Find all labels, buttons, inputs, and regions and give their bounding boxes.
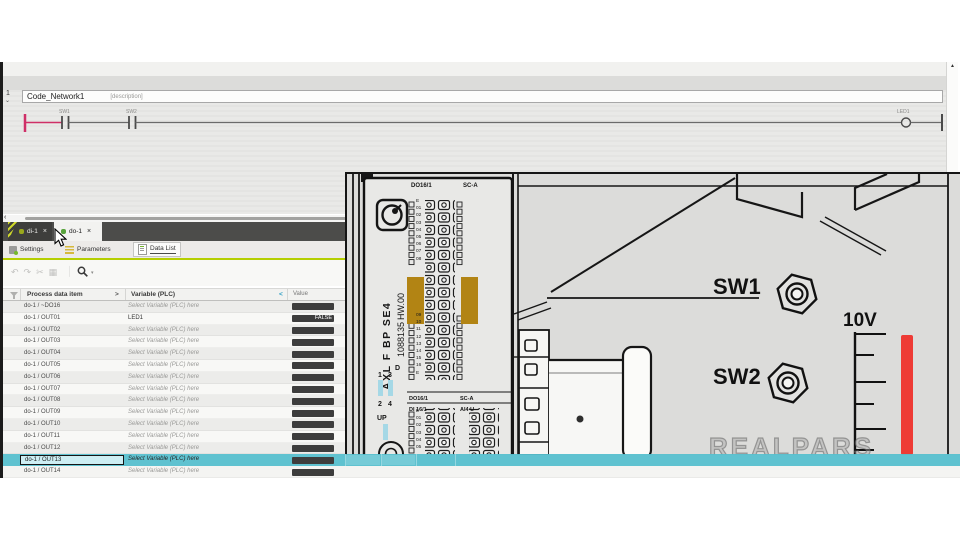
process-data-item[interactable]: do-1 / OUT10 [24, 419, 60, 431]
network-title: Code_Network1 [27, 92, 84, 101]
variable-cell[interactable]: Select Variable (PLC) here [128, 348, 199, 360]
tab-di-1-label: di-1 [27, 228, 38, 235]
data-list-label: Data List [150, 245, 176, 254]
value-bar [292, 457, 334, 464]
dip-label-2: 2 [378, 401, 382, 408]
collapse-column-icon[interactable]: < [279, 291, 283, 298]
tab-parameters[interactable]: Parameters [65, 242, 111, 257]
screw-dot [577, 416, 584, 423]
value-bar [292, 433, 334, 440]
process-data-item[interactable]: do-1 / OUT03 [24, 336, 60, 348]
variable-cell[interactable]: Select Variable (PLC) here [128, 384, 199, 396]
value-bar [292, 339, 334, 346]
column-value[interactable]: Value [293, 291, 308, 297]
cell-separator [416, 454, 417, 466]
toolbar-separator: │ [67, 266, 73, 276]
cell-hint [346, 455, 380, 465]
tab-data-list[interactable]: Data List [133, 242, 181, 257]
variable-cell[interactable]: Select Variable (PLC) here [128, 419, 199, 431]
terminal-column [469, 408, 484, 455]
hw-version-text: HW.00 [396, 293, 406, 320]
contact1-label: SW1 [59, 109, 70, 115]
search-icon[interactable] [77, 266, 89, 278]
channel-label-do16: DO16/1 [411, 183, 432, 189]
terminal-column [440, 200, 455, 380]
value-bar [292, 351, 334, 358]
plc-drawing: AXL F BP SE4 1088135 HW.00 D 1 3 2 4 UP … [347, 174, 960, 455]
process-data-item[interactable]: do-1 / OUT04 [24, 348, 60, 360]
dip-switch-bar [388, 380, 393, 396]
variable-cell[interactable]: Select Variable (PLC) here [128, 454, 199, 466]
gold-highlight [461, 277, 478, 324]
table-row-selected[interactable]: do-1 / OUT13 Select Variable (PLC) here [3, 454, 960, 466]
voltage-label: 10V [843, 310, 877, 331]
value-bar [292, 362, 334, 369]
divider-label-do16: DO16/1 [409, 396, 428, 402]
value-bar [292, 445, 334, 452]
terminal-column [440, 408, 455, 455]
value-bar [292, 469, 334, 476]
variable-cell[interactable]: Select Variable (PLC) here [128, 431, 199, 443]
cell-hint [382, 455, 415, 465]
sw1-switch[interactable] [778, 275, 817, 314]
dip-label-up: UP [377, 415, 387, 422]
panel-notch [855, 174, 919, 210]
scroll-left-icon[interactable]: ‹ [4, 214, 6, 221]
network-header[interactable]: Code_Network1 [description] [22, 90, 943, 103]
process-data-item[interactable]: do-1 / OUT09 [24, 407, 60, 419]
column-divider [20, 289, 21, 300]
network-collapse-icon[interactable]: ⌄ [5, 97, 10, 104]
variable-cell[interactable]: Select Variable (PLC) here [128, 443, 199, 455]
module-icon [19, 229, 24, 234]
search-caret-icon[interactable]: ▾ [91, 270, 94, 276]
process-data-item[interactable]: do-1 / OUT05 [24, 360, 60, 372]
editor-second-band [3, 76, 946, 90]
process-data-item[interactable]: do-1 / OUT02 [24, 325, 60, 337]
terminal-column [484, 408, 499, 455]
panel-notch [737, 174, 802, 217]
sw2-switch[interactable] [769, 364, 808, 403]
watermark: REALPARS [709, 432, 874, 455]
filter-icon[interactable] [9, 291, 19, 300]
tab-settings[interactable]: Settings [9, 242, 44, 257]
value-bar [292, 398, 334, 405]
process-data-item[interactable]: do-1 / OUT08 [24, 395, 60, 407]
led-labels-do2: 09 10 11 12 13 14 15 16 E [416, 312, 428, 377]
value-bar: FALSE [292, 315, 334, 322]
scroll-up-icon[interactable]: ▲ [950, 63, 955, 69]
process-data-item[interactable]: do-1 / ~DO16 [24, 301, 60, 313]
editor-vertical-scrollbar[interactable]: ▲ [946, 62, 958, 172]
dip-label-4: 4 [388, 401, 392, 408]
variable-cell[interactable]: Select Variable (PLC) here [128, 372, 199, 384]
column-divider [287, 289, 288, 300]
value-bar [292, 421, 334, 428]
leader-line [820, 221, 881, 255]
dip-switch-bar [378, 380, 383, 396]
channel-label-sca: SC-A [463, 183, 478, 189]
process-data-item[interactable]: do-1 / OUT06 [24, 372, 60, 384]
variable-cell[interactable]: Select Variable (PLC) here [128, 466, 199, 478]
mouse-cursor [54, 228, 67, 247]
settings-label: Settings [20, 246, 44, 253]
coil-label: LED1 [897, 109, 910, 115]
process-data-item[interactable]: do-1 / OUT11 [24, 431, 60, 443]
redo-icon[interactable]: ↷ [24, 267, 37, 277]
dip-switch-bar [383, 424, 388, 440]
tab-di-1[interactable]: di-1 × [8, 222, 52, 241]
dip-label-1: 1 [378, 372, 382, 379]
variable-cell[interactable]: LED1 [128, 313, 143, 325]
edit-icons[interactable]: ↶↷✂▦ [11, 267, 62, 278]
value-bar [292, 374, 334, 381]
cell-separator [455, 454, 456, 466]
leader-line [551, 178, 735, 292]
settings-icon [9, 246, 17, 254]
leader-line [825, 217, 886, 251]
variable-cell[interactable]: Select Variable (PLC) here [128, 301, 199, 313]
tab-do-1-close[interactable]: × [87, 228, 91, 235]
value-bar [292, 303, 334, 310]
variable-cell[interactable]: Select Variable (PLC) here [128, 336, 199, 348]
modified-hatch-icon [8, 222, 17, 241]
value-bar [292, 386, 334, 393]
process-data-item[interactable]: do-1 / OUT13 [20, 455, 124, 465]
process-data-item[interactable]: do-1 / OUT12 [24, 443, 60, 455]
voltage-level-bar [901, 335, 913, 455]
process-data-item[interactable]: do-1 / OUT14 [24, 466, 60, 478]
column-variable-plc[interactable]: Variable (PLC) [131, 291, 175, 298]
column-process-data-item[interactable]: Process data item [27, 291, 83, 298]
column-divider [125, 289, 126, 300]
value-bar [292, 410, 334, 417]
tab-di-1-close[interactable]: × [43, 228, 47, 235]
process-data-item[interactable]: do-1 / OUT01 [24, 313, 60, 325]
editor-top-band [3, 62, 946, 76]
variable-cell[interactable]: Select Variable (PLC) here [128, 407, 199, 419]
led-labels-do: E 01 02 03 04 05 06 07 08 [416, 198, 428, 263]
tab-do-1-label: do-1 [69, 228, 82, 235]
table-row[interactable]: do-1 / OUT14Select Variable (PLC) here [3, 466, 960, 478]
variable-cell[interactable]: Select Variable (PLC) here [128, 360, 199, 372]
variable-cell[interactable]: Select Variable (PLC) here [128, 395, 199, 407]
parameters-label: Parameters [77, 246, 111, 253]
undo-icon[interactable]: ↶ [11, 267, 24, 277]
value-text: FALSE [315, 315, 332, 321]
grid-icon[interactable]: ▦ [49, 267, 63, 277]
value-bar [292, 327, 334, 334]
sw1-label: SW1 [713, 274, 761, 299]
divider-label-sca: SC-A [460, 396, 473, 402]
network-description[interactable]: [description] [110, 94, 142, 100]
coil-symbol[interactable] [902, 118, 911, 127]
break-mark [514, 302, 547, 314]
cut-icon[interactable]: ✂ [36, 267, 49, 277]
variable-cell[interactable]: Select Variable (PLC) here [128, 325, 199, 337]
order-number-text: 1088135 [396, 322, 406, 357]
process-data-item[interactable]: do-1 / OUT07 [24, 384, 60, 396]
expand-column-icon[interactable]: > [115, 291, 119, 298]
dip-label-d: D [395, 365, 400, 372]
data-list-icon [138, 244, 147, 255]
break-mark [518, 308, 551, 320]
hardware-illustration: AXL F BP SE4 1088135 HW.00 D 1 3 2 4 UP … [345, 172, 960, 455]
contact2-label: SW2 [126, 109, 137, 115]
led-labels-di: E 01 02 03 04 05 [416, 408, 428, 451]
section2-label-ai4u: AI4 U [460, 407, 474, 413]
app-window: 1 ⌄ Code_Network1 [description] SW1 SW2 … [0, 0, 960, 540]
dip-label-3: 3 [388, 372, 392, 379]
sw2-label: SW2 [713, 364, 761, 389]
